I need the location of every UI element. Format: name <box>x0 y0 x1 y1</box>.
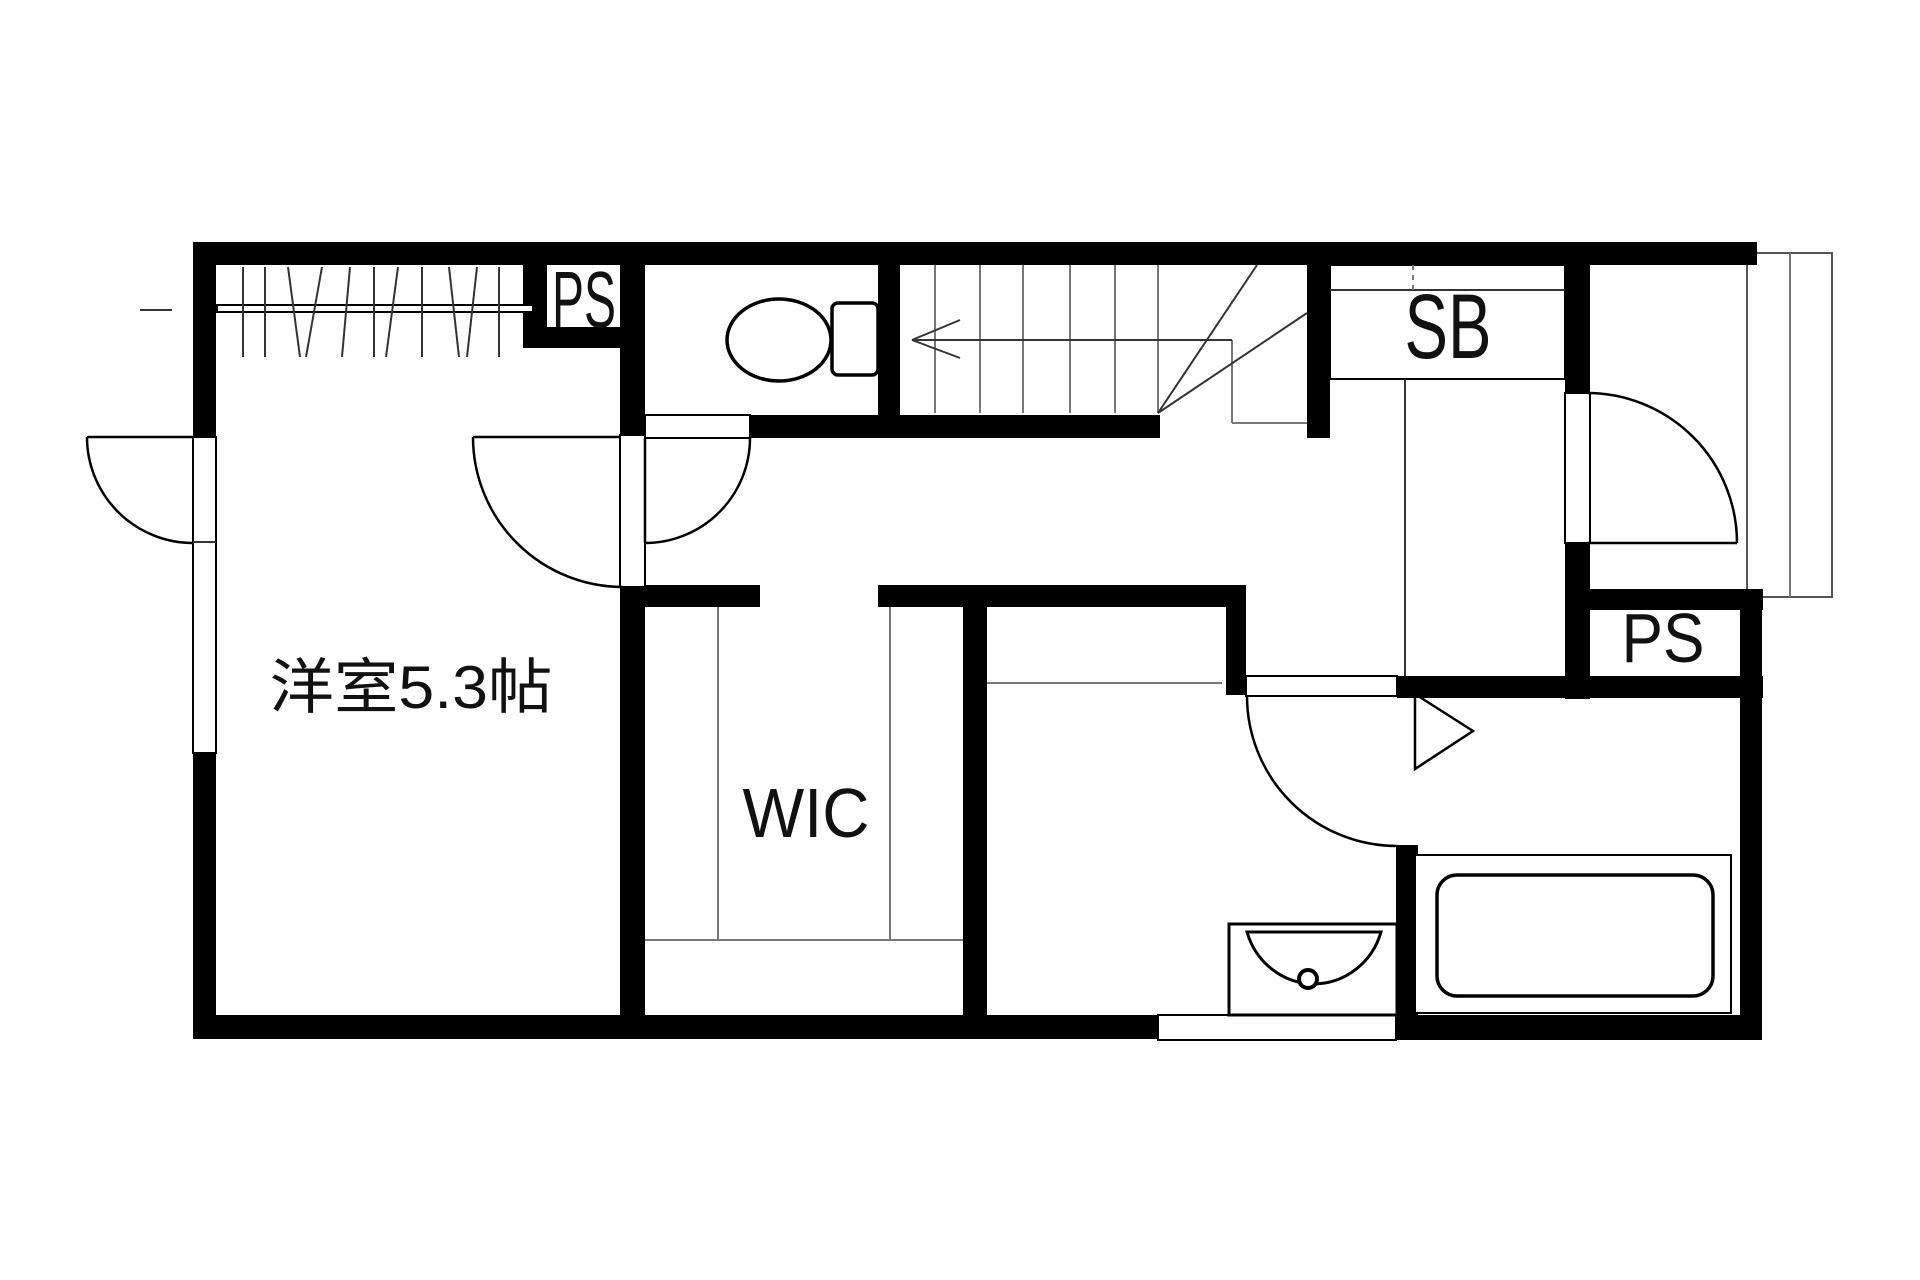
sink-icon <box>1229 924 1397 1015</box>
washroom-door-leaf <box>1246 676 1397 696</box>
bedroom-door-opening <box>620 435 645 587</box>
bathtub-icon <box>1415 855 1731 1013</box>
toilet-door-opening <box>645 415 750 438</box>
main-room-label: 洋室5.3帖 <box>270 654 553 721</box>
top-right-room-door-opening <box>1565 393 1590 543</box>
right-exterior-window <box>1747 253 1832 597</box>
wic-label: WIC <box>743 774 870 852</box>
left-window <box>193 437 216 753</box>
floor-plan-page: 洋室5.3帖 WIC PS PS SB <box>0 0 1920 1280</box>
pipe-space-top-label: PS <box>552 255 616 344</box>
shoe-box-label: SB <box>1405 276 1492 378</box>
pipe-space-right-label: PS <box>1622 599 1705 677</box>
toilet-icon <box>727 299 878 381</box>
bottom-window <box>1158 1015 1396 1040</box>
floor-plan-drawing: 洋室5.3帖 WIC PS PS SB <box>0 0 1920 1280</box>
